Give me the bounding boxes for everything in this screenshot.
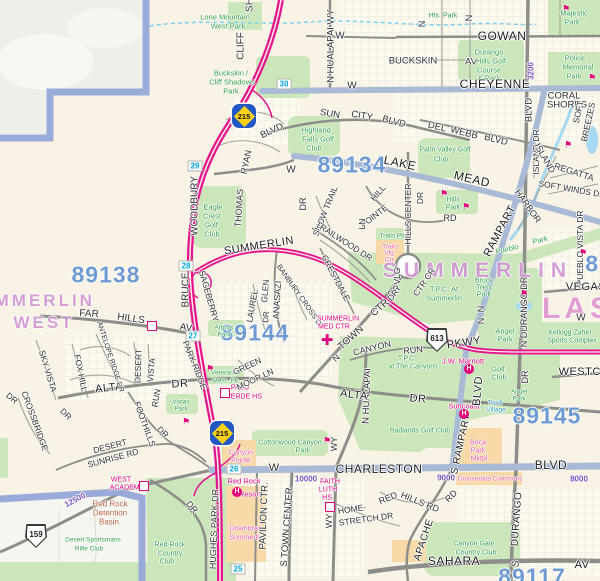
street-label: DR — [298, 198, 308, 211]
street-label: DR — [155, 424, 171, 440]
park-label: Park — [223, 87, 238, 96]
point-of-interest-flag-icon: ⚑ — [564, 141, 572, 150]
state-route-shield: 159 — [25, 524, 47, 548]
street-label: BLVD — [259, 121, 286, 141]
street-label: N — [417, 21, 427, 28]
park-label: Buckskin / — [214, 69, 248, 78]
street-label: CITY — [350, 109, 373, 124]
village-label: Village — [486, 407, 505, 414]
point-of-interest-flag-icon: ⚑ — [182, 418, 190, 427]
street-label: S TOWN CENTER — [279, 487, 296, 567]
major-street-label: WESTCLIFF — [559, 366, 600, 378]
park-label: Highland — [301, 126, 331, 135]
school-label: VERDE HS — [226, 394, 262, 401]
point-of-interest-flag-icon: ⚑ — [562, 5, 570, 14]
school-icon — [220, 388, 230, 398]
shopping-center-label: Canyon — [229, 450, 253, 457]
park-label: Hts. Park — [429, 13, 458, 20]
park-label: Country Club — [456, 550, 497, 557]
hotel-label: Resort — [239, 490, 261, 499]
street-label: RYAN — [239, 149, 254, 175]
point-of-interest-flag-icon: ⚑ — [323, 437, 331, 446]
block-number-label: 3200 — [527, 62, 536, 80]
street-label: RD — [444, 213, 457, 223]
block-number-label: 8000 — [570, 475, 588, 484]
point-of-interest-flag-icon: ⚑ — [588, 74, 596, 83]
park-label: Memorial — [563, 63, 594, 72]
point-of-interest-flag-icon: ⚑ — [579, 249, 587, 258]
street-label: FOOTHILLS — [132, 400, 158, 448]
street-label: W — [335, 31, 344, 42]
park-label: Hills — [446, 197, 459, 204]
street-label: N — [464, 15, 474, 22]
major-street-label: ALTA — [339, 387, 368, 402]
street-label: SKY VISTA — [37, 349, 59, 393]
street-label: PAVILION CTR. — [257, 482, 270, 550]
park-label: T.P.C. At — [430, 285, 458, 294]
school-label: LUTH — [319, 487, 337, 494]
park-label: Park — [566, 72, 581, 81]
street-label: HARBOR — [513, 187, 543, 224]
street-label: DEL — [427, 119, 448, 134]
village-label: Tivoli — [488, 400, 503, 407]
park-label: Bruce — [475, 278, 493, 285]
exit-number-badge: 28 — [179, 261, 194, 272]
street-label: ANASAZI — [271, 281, 283, 320]
zip-code-label: 89134 — [318, 152, 387, 179]
street-label: HILLS RD — [399, 490, 440, 514]
zip-code-label: 89117 — [498, 564, 566, 581]
school-icon — [325, 502, 335, 512]
street-label: DESERT — [132, 349, 143, 384]
block-number-label: 9000 — [437, 474, 455, 483]
park-label: Country — [158, 551, 183, 558]
street-label: HILLS — [116, 312, 145, 327]
street-label: HUGHES PARK DR — [208, 489, 221, 570]
shopping-center-label: Boca — [470, 440, 486, 447]
street-label: DR — [415, 192, 425, 204]
park-label: Angel — [511, 389, 528, 396]
street-label: VLG — [392, 267, 402, 284]
street-label: N — [476, 306, 486, 313]
park-label: Red Rock — [155, 542, 186, 549]
park-label: Park — [531, 234, 548, 246]
park-label: Park — [296, 448, 310, 455]
street-label: W — [269, 462, 279, 474]
park-label: Park — [446, 205, 460, 212]
shopping-center-label: Crossroads Commons — [458, 476, 523, 483]
major-street-label: BLVD — [535, 458, 567, 472]
street-label: CTR — [369, 297, 392, 319]
school-label: WEST — [111, 477, 131, 484]
street-label: RUN — [149, 388, 162, 408]
park-label: Police — [565, 54, 585, 63]
park-label: Summerlin — [426, 294, 462, 303]
street-label: LN — [357, 219, 367, 230]
street-label: BLVD — [524, 98, 535, 122]
state-route-shield: 613 — [426, 328, 448, 352]
park-label: Park — [477, 292, 491, 299]
street-label: WOODBURY — [190, 176, 201, 236]
street-label: DR — [520, 371, 530, 384]
exit-number-badge: 29 — [188, 161, 203, 172]
park-label: Durango — [475, 48, 504, 57]
park-label: T.P.C. — [398, 356, 416, 363]
street-label: FAR — [79, 308, 99, 320]
street-label: DR — [4, 390, 20, 406]
park-label: West Park — [211, 22, 245, 31]
park-label: Eagle — [203, 203, 222, 212]
zip-code-label: 89138 — [72, 262, 141, 289]
street-label: LAUREL — [244, 289, 260, 323]
street-label: CRESTDALE — [320, 253, 353, 303]
park-label: Crest — [203, 212, 221, 221]
major-street-label: GOWAN — [478, 29, 527, 43]
street-label: N — [476, 318, 486, 325]
park-label: Cottonwood Canyon — [258, 440, 321, 447]
park-label: Arbors — [214, 325, 233, 332]
street-label: RED — [377, 490, 398, 506]
route-215-shield: 215 — [210, 421, 234, 445]
street-label: DR — [184, 499, 200, 515]
park-label: Club — [491, 373, 506, 382]
basin-label: Red Rock — [92, 500, 127, 509]
exit-number-badge: 25 — [231, 564, 246, 575]
hospital-icon: H — [459, 409, 469, 419]
park-label: Hills Golf — [476, 57, 506, 66]
major-street-label: DR — [171, 377, 189, 390]
street-label: N DURANGO DR — [519, 277, 529, 348]
street-label: BLVD — [381, 114, 407, 131]
hospital-icon: H — [464, 364, 474, 374]
park-label: Park — [512, 396, 525, 403]
street-label: CROSSBRIDGE — [20, 390, 51, 452]
street-label: HILL — [368, 183, 387, 203]
park-label: Rifle Club — [75, 546, 103, 553]
park-label: Cliff Shadows — [209, 78, 255, 87]
major-street-label: BLVD — [471, 376, 486, 407]
exit-number-badge: 26 — [227, 464, 242, 475]
street-label: DR — [58, 406, 74, 422]
park-label: Falls Golf — [302, 135, 334, 144]
block-number-label: 10000 — [295, 475, 317, 484]
school-label: FAITH — [320, 479, 340, 486]
school-label: MED CTR — [318, 324, 350, 331]
city-label: WEST — [13, 313, 74, 333]
shopping-center-label: Park — [471, 448, 485, 455]
street-label: WY — [324, 514, 334, 529]
street-label: RUN — [403, 344, 423, 356]
park-label: Palm Valley Golf — [419, 147, 470, 154]
street-label: N HUALAPAI WY — [326, 9, 337, 83]
street-label: W — [286, 165, 295, 176]
street-label: CANYON — [352, 338, 392, 357]
park-label: Trent — [476, 285, 492, 292]
major-street-label: MEAD — [453, 168, 492, 190]
street-label: N — [330, 352, 342, 364]
hotel-label: Red Rock — [228, 477, 261, 486]
park-label: Lone Mountain — [200, 13, 250, 22]
major-street-label: PKWY — [446, 335, 482, 352]
exit-number-badge: 30 — [277, 79, 292, 90]
park-label: Club — [160, 559, 174, 566]
street-label: VISTA — [145, 358, 157, 383]
shopping-center-label: Pointe — [231, 458, 251, 465]
basin-label: Detention — [93, 509, 127, 518]
street-label: SH — [245, 0, 256, 12]
street-label: BLVD — [483, 132, 509, 149]
park-label: Kellogg Zaher — [548, 330, 592, 337]
street-label: BUCKSKIN — [389, 56, 438, 67]
street-label: W — [576, 313, 585, 324]
park-label: Trails Pk — [379, 233, 404, 240]
street-label: SUN — [319, 107, 341, 121]
hotel-label: J.W. Marriott — [442, 357, 484, 366]
major-street-label: CHARLESTON — [336, 462, 423, 476]
school-label: HS — [322, 495, 332, 502]
park-label: Club — [434, 157, 448, 164]
major-street-label: LAKE — [383, 153, 418, 173]
park-label: Park — [217, 332, 230, 339]
point-of-interest-flag-icon: ⚑ — [520, 290, 528, 299]
street-label: REGATTA — [553, 161, 595, 183]
park-label: Park — [174, 406, 187, 413]
basin-label: Basin — [99, 518, 119, 527]
labels-layer: CLIFFSHLone MountainWest ParkN HUALAPAI … — [0, 0, 600, 581]
zip-code-label: 89 — [585, 251, 600, 278]
school-icon — [139, 481, 149, 491]
major-street-label: DURANGO — [510, 491, 525, 546]
street-label: SAGEBERRY — [197, 269, 221, 322]
school-label: SUMMERLIN — [317, 316, 359, 323]
major-street-label: AV — [575, 559, 590, 571]
map-viewport[interactable]: CLIFFSHLone MountainWest ParkN HUALAPAI … — [0, 0, 600, 581]
park-label: Park — [497, 335, 512, 344]
street-label: GLEN — [259, 279, 271, 303]
park-label: Desert Sportsmans — [65, 537, 121, 544]
park-label: Badlands Golf Club — [390, 428, 450, 435]
school-icon — [147, 321, 157, 331]
street-label: CLIFF — [236, 32, 247, 60]
point-of-interest-flag-icon: ⚑ — [440, 190, 448, 199]
street-label: W — [347, 81, 356, 92]
route-215-shield: 215 — [232, 104, 256, 128]
hospital-icon: H — [232, 487, 242, 497]
shopping-center-label: Mktpl. — [471, 456, 490, 463]
park-label: Sports Complex — [547, 338, 597, 345]
park-label: at The Canyons — [388, 364, 437, 371]
medical-center-icon: ✚ — [321, 334, 334, 348]
park-label: Club — [204, 230, 219, 239]
zip-code-label: 89145 — [513, 403, 582, 430]
city-label: LAS — [542, 292, 600, 326]
street-label: THOMAS — [233, 188, 246, 227]
street-label: FOX HILL — [72, 353, 90, 392]
major-street-label: CHEYENNE — [460, 77, 531, 91]
park-label: Park — [564, 18, 579, 27]
point-of-interest-flag-icon: ⚑ — [462, 203, 470, 212]
street-label: BRUCE — [181, 272, 192, 307]
park-label: Canyon Gate — [453, 541, 494, 548]
shopping-center-label: Vlg — [384, 250, 393, 257]
street-label: WEBB — [449, 124, 479, 141]
park-label: Golf — [204, 221, 218, 230]
park-label: Vistas — [172, 399, 190, 406]
major-street-label: DR — [409, 392, 427, 405]
block-number-label: 12500 — [63, 491, 87, 509]
street-label: RD — [443, 488, 459, 504]
major-street-label: SUMMERLIN — [223, 235, 295, 258]
point-of-interest-flag-icon: ⚑ — [206, 365, 214, 374]
